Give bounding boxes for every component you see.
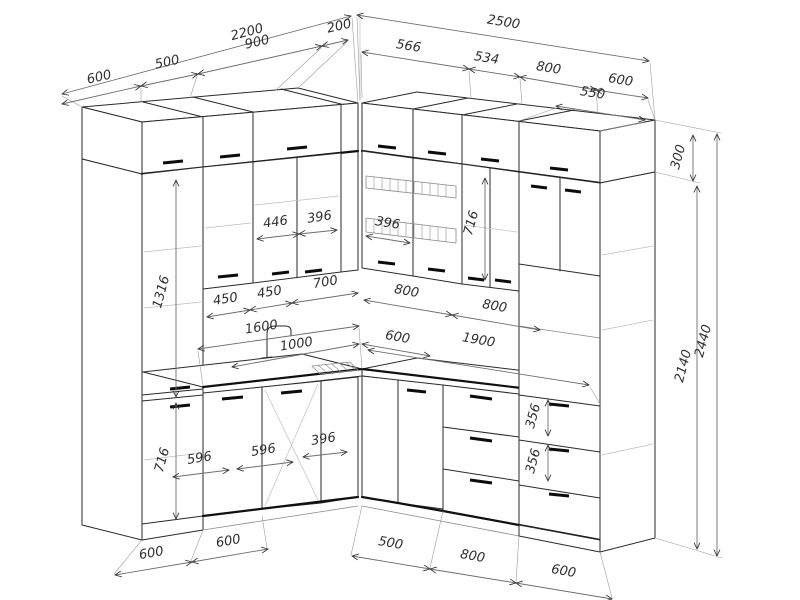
top-box-handle xyxy=(378,146,396,148)
wall-cabinet-handle xyxy=(218,275,238,277)
base-handle xyxy=(281,391,302,393)
wall-cabinet-500 xyxy=(203,162,253,289)
wall-cabinet-handle xyxy=(428,269,445,271)
base-cabinet-500 xyxy=(398,380,443,509)
column-door-handle xyxy=(565,190,581,192)
wall-cabinet-handle xyxy=(495,280,511,282)
kitchen-elevation-page: 2200 600 500 900 200 2500 566 534 800 60… xyxy=(0,0,800,600)
top-box-handle xyxy=(550,168,568,170)
wall-cabinet-handle xyxy=(305,270,322,272)
wall-cabinet-534 xyxy=(413,158,462,284)
top-box-handle xyxy=(220,155,240,157)
top-box-handle xyxy=(163,161,183,163)
tall-column xyxy=(519,172,600,552)
corner-base-right xyxy=(362,376,398,503)
base-handle xyxy=(407,390,426,392)
pantry-lower-handle xyxy=(170,405,190,407)
wall-cabinet-handle xyxy=(272,272,289,274)
top-box-handle xyxy=(428,152,446,154)
wall-cabinet-handle xyxy=(378,262,395,264)
left-end-panel xyxy=(82,107,142,540)
tall-column-side xyxy=(600,172,655,552)
column-door-handle xyxy=(531,186,547,188)
drawer-handle xyxy=(549,404,569,406)
drawer-handle xyxy=(549,449,569,451)
top-box-handle xyxy=(287,147,307,149)
drawer-unit-800 xyxy=(443,385,519,525)
pantry-cabinet xyxy=(142,167,203,540)
pantry-upper-handle xyxy=(170,387,190,389)
wall-cabinet-566 xyxy=(362,151,413,276)
kitchen-drawing: 2200 600 500 900 200 2500 566 534 800 60… xyxy=(0,0,800,600)
drawer-handle xyxy=(549,494,569,496)
wall-cabinet-handle xyxy=(468,278,484,280)
base-handle xyxy=(222,397,243,399)
top-box-handle xyxy=(481,159,499,161)
